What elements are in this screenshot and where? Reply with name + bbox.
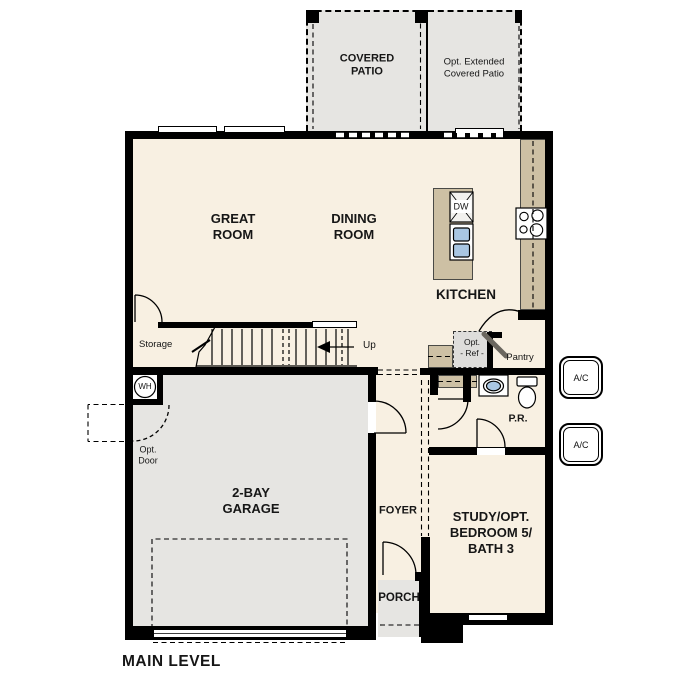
garage-label: 2-BAY GARAGE — [209, 485, 294, 517]
floor-plan: A/C A/C COVERED PATIO Opt. Extended Cove… — [0, 0, 687, 687]
window-study — [468, 614, 508, 621]
window-great-room-1 — [158, 126, 217, 133]
patio-post-right — [515, 10, 522, 23]
pantry-label: Pantry — [506, 352, 533, 364]
patio-post-mid — [415, 10, 428, 23]
great-room-label: GREAT ROOM — [197, 211, 269, 243]
window-great-room-2 — [224, 126, 285, 133]
wall-wh-bottom — [133, 399, 163, 405]
ac-unit-2: A/C — [559, 423, 603, 466]
wall-wh-right — [157, 375, 163, 401]
opt-ref-label-1: Opt. — [464, 337, 480, 347]
covered-patio-label: COVERED PATIO — [335, 53, 399, 80]
wall-closet-stub — [430, 375, 438, 395]
wall-left — [125, 131, 133, 640]
stairs-railing — [312, 321, 357, 328]
porch-floor — [378, 580, 421, 637]
wall-foyer-study — [421, 537, 430, 615]
kitchen-counter — [520, 139, 546, 310]
pr-door-opening — [477, 448, 505, 455]
up-label: Up — [363, 340, 376, 352]
hall-cabinet-upper — [428, 345, 453, 368]
opt-door-label-1: Opt. — [139, 445, 156, 456]
wall-garage-top — [125, 367, 378, 375]
opt-door-label-2: Door — [138, 456, 158, 467]
opt-ref-label-2: - Ref - — [460, 348, 484, 358]
hall-cabinet-lower — [438, 375, 477, 388]
ac-unit-1-label: A/C — [563, 360, 599, 395]
garage-overhead-door — [153, 629, 347, 638]
patio-slider-fixed-panel — [455, 128, 504, 134]
dining-room-label: DINING ROOM — [318, 211, 390, 243]
wh-label: WH — [138, 382, 151, 392]
pr-label: P.R. — [508, 413, 527, 426]
kitchen-label: KITCHEN — [416, 287, 516, 303]
wall-pr-closet — [463, 375, 471, 402]
wall-hall-south — [420, 368, 553, 375]
dw-label: DW — [454, 202, 469, 213]
wall-study-corner — [421, 613, 463, 643]
patio-post-left — [306, 10, 319, 23]
study-label: STUDY/OPT. BEDROOM 5/ BATH 3 — [431, 509, 551, 557]
storage-label: Storage — [139, 340, 172, 351]
ac-unit-2-label: A/C — [563, 427, 599, 462]
opt-door-outline — [88, 405, 124, 442]
ac-unit-1: A/C — [559, 356, 603, 399]
main-level-title: MAIN LEVEL — [122, 653, 221, 671]
opt-patio-label: Opt. Extended Covered Patio — [430, 56, 518, 79]
garage-door-opening — [368, 402, 376, 433]
wall-pantry-stub — [487, 332, 502, 338]
porch-label: PORCH — [378, 591, 420, 605]
wall-kitchen-pantry — [518, 310, 553, 320]
main-floor-lower — [376, 368, 545, 613]
wall-stairs-top — [158, 322, 312, 328]
foyer-label: FOYER — [379, 504, 417, 517]
